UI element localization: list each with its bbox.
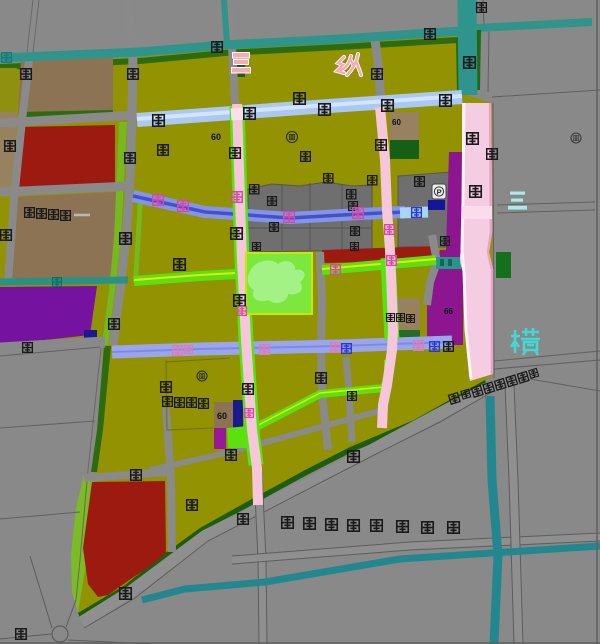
svg-text:60: 60 (211, 132, 221, 142)
svg-text:60: 60 (392, 118, 401, 127)
svg-text:P: P (437, 187, 442, 196)
svg-text:60: 60 (217, 411, 227, 421)
svg-text:66: 66 (444, 307, 453, 316)
